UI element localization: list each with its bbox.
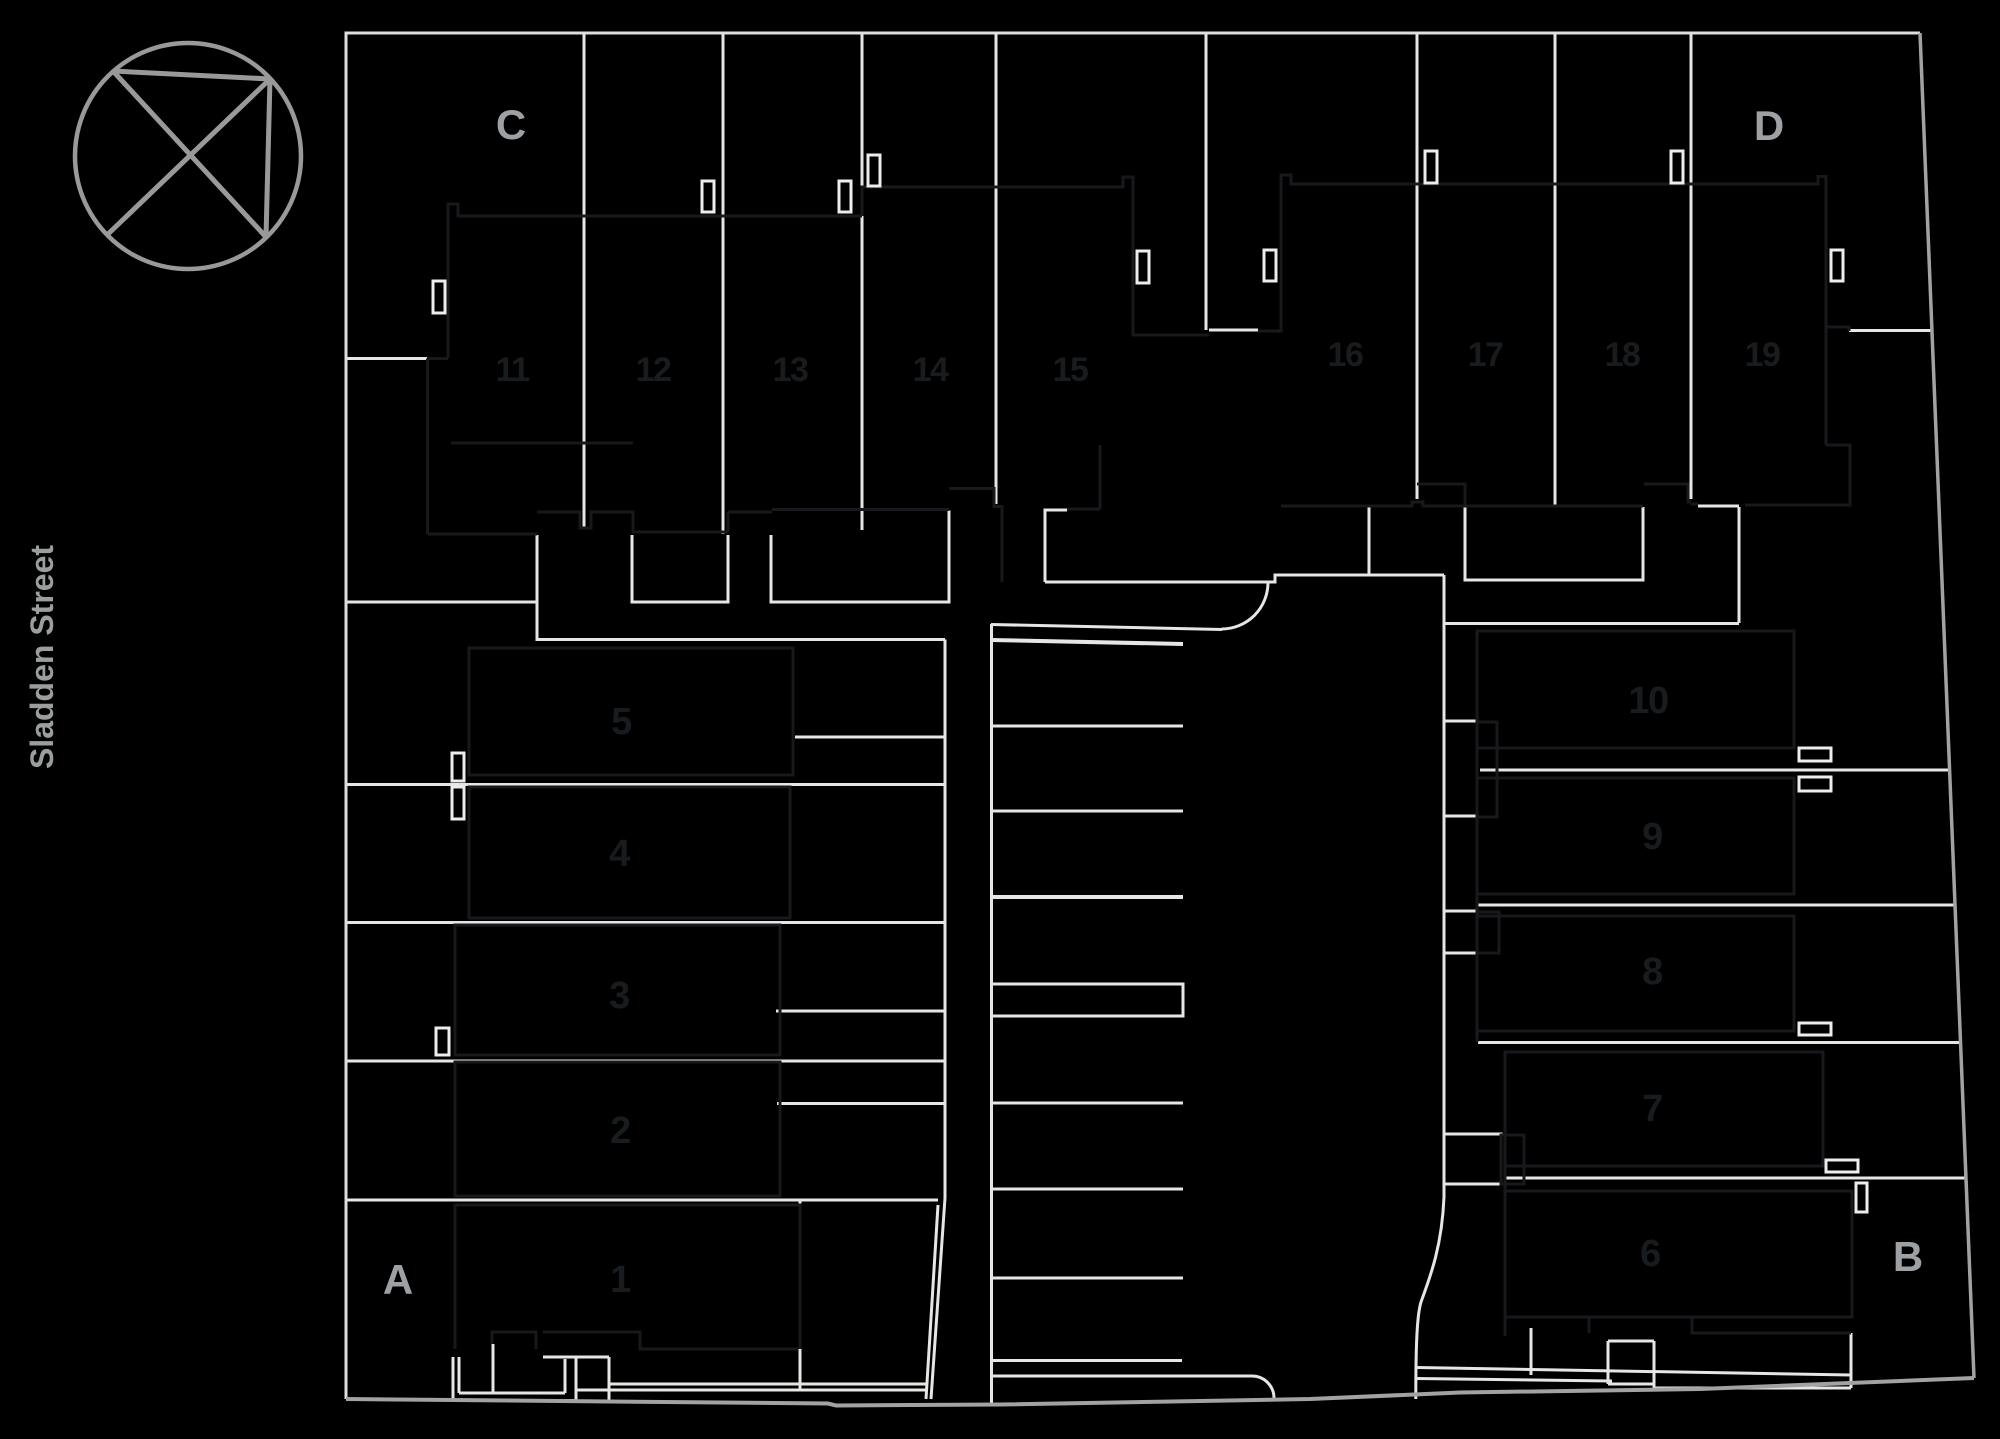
svg-text:6: 6 <box>1640 1233 1660 1275</box>
svg-text:5: 5 <box>611 701 632 743</box>
svg-text:8: 8 <box>1642 951 1662 993</box>
svg-text:Sladden Street: Sladden Street <box>24 545 60 769</box>
svg-text:A: A <box>383 1256 413 1303</box>
svg-text:9: 9 <box>1642 816 1662 858</box>
svg-text:14: 14 <box>913 351 949 389</box>
svg-text:17: 17 <box>1468 336 1503 374</box>
svg-text:2: 2 <box>610 1110 630 1152</box>
svg-text:16: 16 <box>1328 336 1363 374</box>
svg-text:10: 10 <box>1628 680 1668 722</box>
svg-text:13: 13 <box>773 351 808 389</box>
svg-text:18: 18 <box>1605 336 1640 374</box>
svg-text:19: 19 <box>1745 336 1780 374</box>
svg-text:B: B <box>1893 1233 1923 1280</box>
svg-text:3: 3 <box>609 975 629 1017</box>
svg-text:11: 11 <box>496 351 530 389</box>
svg-text:C: C <box>496 101 526 148</box>
svg-text:D: D <box>1754 102 1784 149</box>
svg-text:12: 12 <box>636 351 671 389</box>
svg-text:1: 1 <box>610 1259 631 1301</box>
svg-text:15: 15 <box>1053 351 1088 389</box>
svg-text:7: 7 <box>1642 1088 1662 1130</box>
svg-text:4: 4 <box>609 833 630 875</box>
